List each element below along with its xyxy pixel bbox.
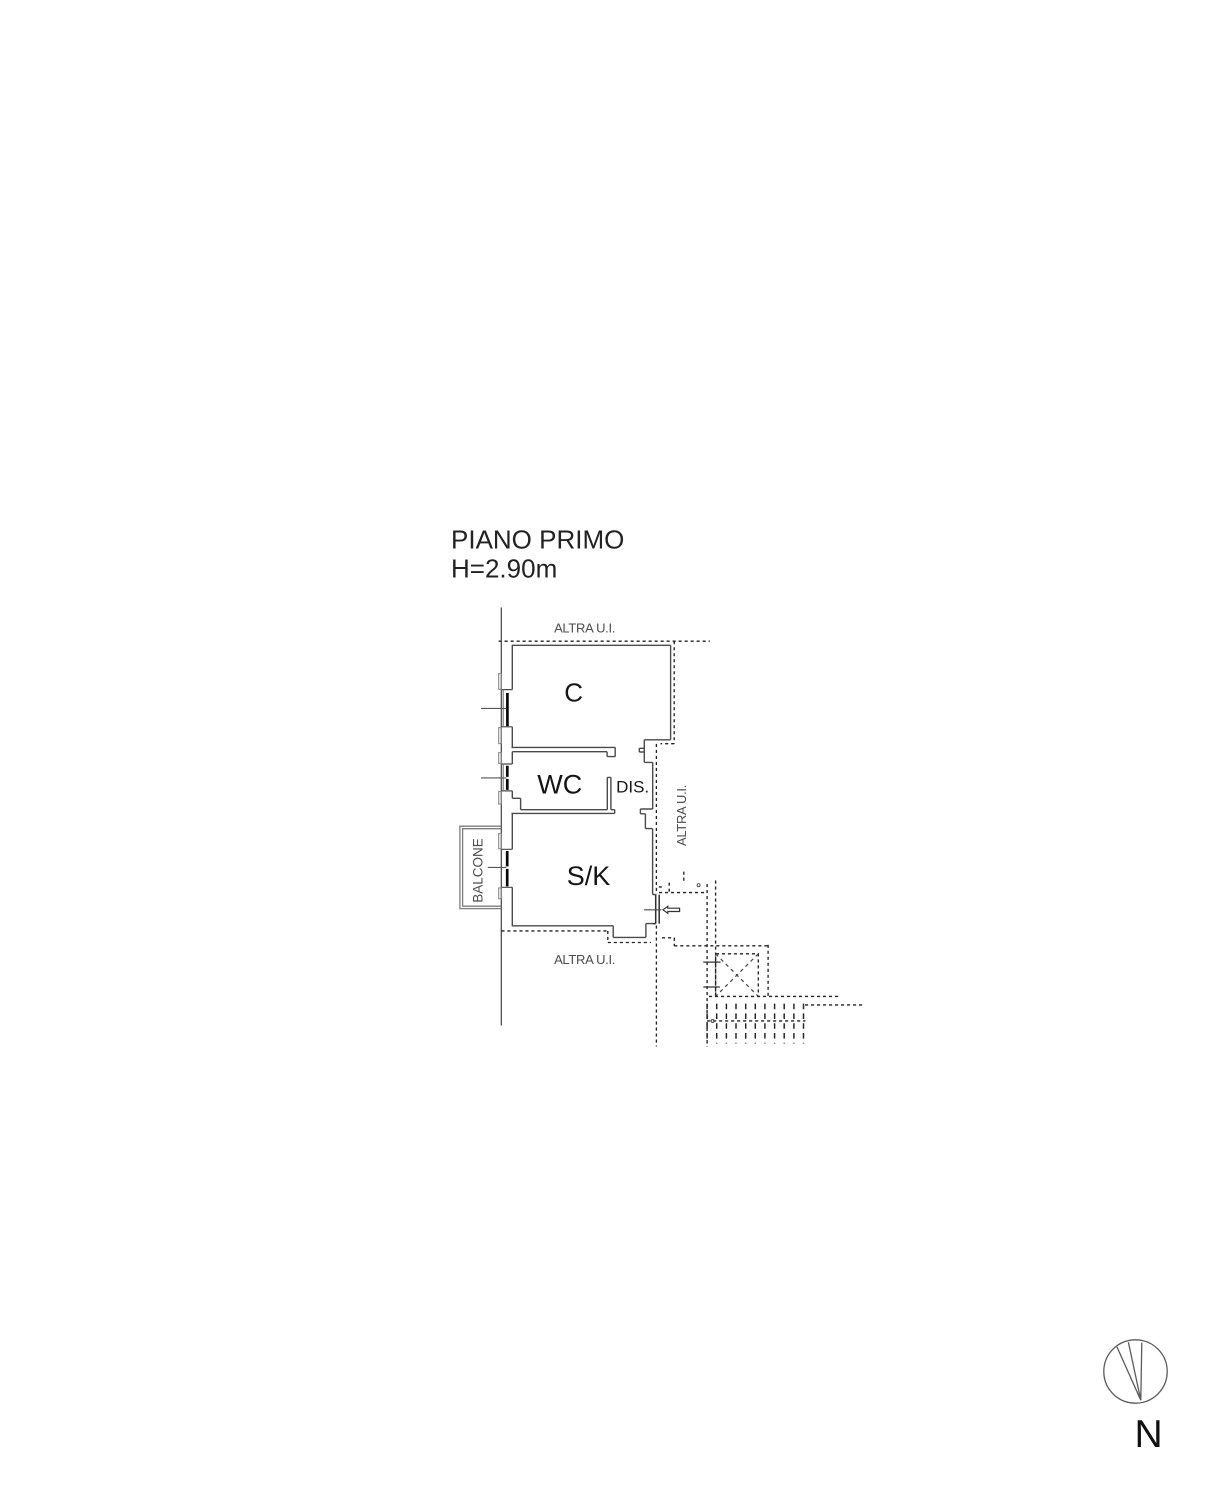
svg-text:ALTRA U.I.: ALTRA U.I.	[554, 621, 615, 636]
svg-text:H=2.90m: H=2.90m	[451, 554, 557, 584]
svg-text:ALTRA U.I.: ALTRA U.I.	[674, 785, 689, 846]
svg-text:WC: WC	[537, 769, 582, 799]
svg-text:DIS.: DIS.	[616, 778, 649, 797]
svg-text:ALTRA U.I.: ALTRA U.I.	[554, 952, 615, 967]
svg-text:C: C	[564, 678, 583, 708]
svg-text:S/K: S/K	[567, 861, 611, 891]
svg-text:BALCONE: BALCONE	[471, 838, 486, 903]
svg-text:PIANO PRIMO: PIANO PRIMO	[451, 525, 624, 555]
svg-text:N: N	[1135, 1413, 1163, 1456]
